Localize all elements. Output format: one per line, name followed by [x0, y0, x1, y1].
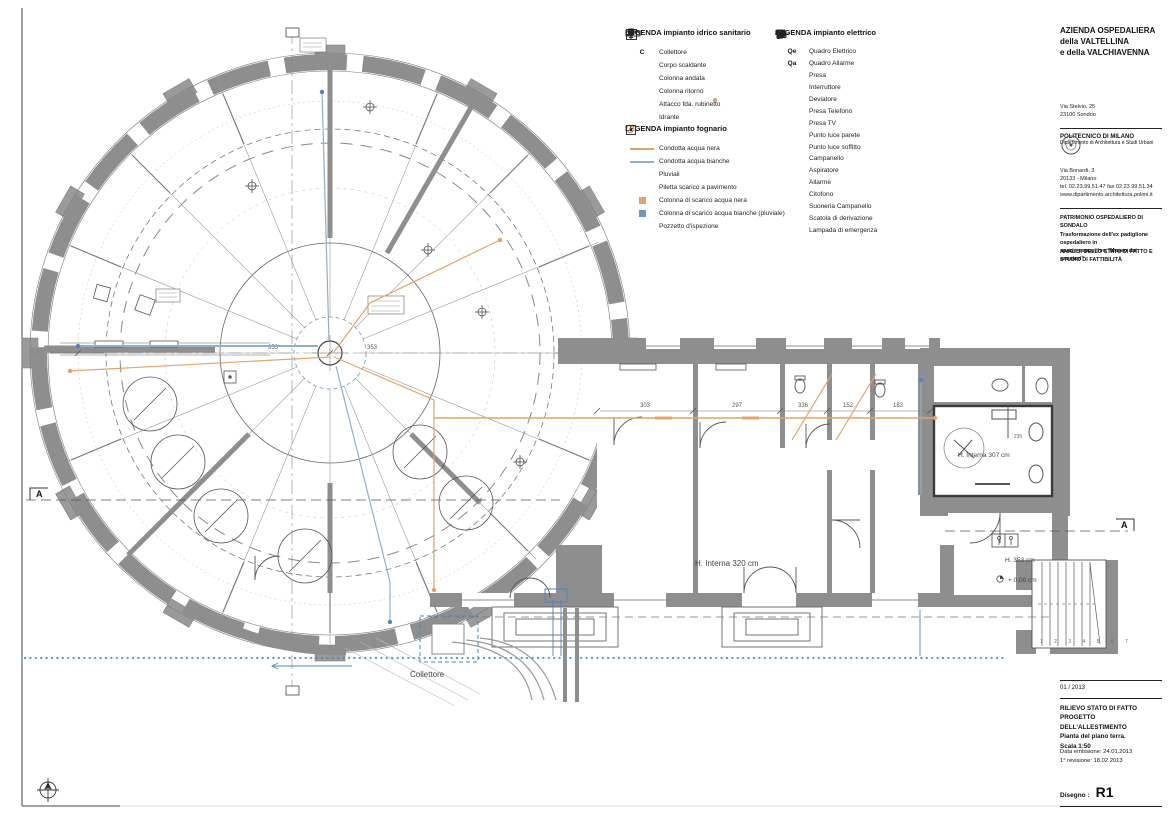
legend-item: Presa TV: [775, 117, 877, 129]
legend-item: Pluviali: [625, 168, 785, 181]
legend-item: Corpo scaldante: [625, 59, 751, 72]
legend-item: Scatola di derivazione: [775, 212, 877, 224]
drawing-number: Disegno : R1: [1060, 784, 1162, 800]
svg-text:297: 297: [732, 403, 743, 409]
title-block: AZIENDA OSPEDALIERA della VALTELLINA e d…: [1060, 22, 1162, 812]
svg-text:A: A: [36, 489, 43, 499]
drawing-sheet: 353 353: [0, 0, 1170, 827]
legend-idrico-title: LEGENDA impianto idrico sanitario: [625, 28, 751, 37]
collettore-symbol: C: [640, 49, 645, 56]
legend-elettrico-title: LEGENDA impianto elettrico: [775, 28, 877, 37]
legend-item: Aspiratore: [775, 165, 877, 177]
legend-item: Suoneria Campanello: [775, 201, 877, 213]
legend-item: C Collettore: [625, 46, 751, 59]
electric-panel-symbol: Qe: [788, 48, 797, 55]
dim-label: 353: [367, 345, 378, 351]
room-label-h353: H. 353 cm: [1005, 557, 1035, 564]
university-address: Via Bonardi, 3 20133 - Milano tel. 02.23…: [1060, 168, 1162, 200]
emergency-light-icon: [775, 28, 788, 40]
politecnico-logo: [1060, 134, 1082, 156]
stormwater-line-icon: [630, 161, 654, 163]
project-phase: ANALISI DELLO STATO DI FATTO E STUDIO DI…: [1060, 248, 1162, 265]
entry-porches: [492, 607, 822, 647]
room-label-h320: H. Interna 320 cm: [695, 559, 759, 568]
light-symbols: [245, 100, 527, 469]
legend-item: Citofono: [775, 189, 877, 201]
tag-boxes: [156, 38, 404, 314]
level-label: + 0,00 cm: [1008, 577, 1037, 584]
legend-item: Condotta acqua nera: [625, 142, 785, 155]
legend-item: Punto luce soffitto: [775, 141, 877, 153]
drawing-code: R1: [1096, 784, 1114, 800]
north-arrow-icon: [37, 778, 59, 802]
legend-item: Colonna ritorno: [625, 85, 751, 98]
legend-item: Piletta scarico a pavimento: [625, 181, 785, 194]
university-block: POLITECNICO DI MILANO Dipartimento di Ar…: [1060, 134, 1162, 146]
legend-fognario-title: LEGENDA impianto fognario: [625, 124, 785, 133]
legend-item: Qa Quadro Allarme: [775, 58, 877, 70]
sewage-line-icon: [630, 148, 654, 150]
svg-text:183: 183: [893, 403, 904, 409]
rainwater-stack-icon: [639, 210, 646, 217]
legend-item: Campanello: [775, 153, 877, 165]
legend-elettrico: LEGENDA impianto elettrico Qe Quadro Ele…: [775, 28, 877, 236]
legend-item: Allarme: [775, 177, 877, 189]
legend-item: Colonna di scarico acqua bianche (pluvia…: [625, 207, 785, 220]
client-name: AZIENDA OSPEDALIERA della VALTELLINA e d…: [1060, 26, 1162, 58]
legend-item: Colonna di scarico acqua nera: [625, 194, 785, 207]
revision-notes: Data emissione: 24.01.2013 1° revisione:…: [1060, 748, 1162, 765]
floor-plan: 353 353: [0, 0, 1170, 827]
legend-idrico: LEGENDA impianto idrico sanitario C Coll…: [625, 28, 751, 124]
collector-label: Collettore: [410, 670, 445, 679]
sheet-date: 01 / 2013: [1060, 685, 1162, 691]
legend-item: Deviatore: [775, 94, 877, 106]
legend-item: Qe Quadro Elettrico: [775, 46, 877, 58]
inspection-pit-icon: [625, 124, 637, 136]
legend-fognario: LEGENDA impianto fognario Condotta acqua…: [625, 124, 785, 233]
room-label-h307: H. Interna 307 cm: [958, 452, 1010, 459]
legend-item: Pozzetto d'ispezione: [625, 220, 785, 233]
legend-item: Condotta acqua bianche: [625, 155, 785, 168]
legend-item: Attacco fda. rubinetto: [625, 98, 751, 111]
legend-item: Presa: [775, 70, 877, 82]
svg-text:303: 303: [640, 403, 651, 409]
legend-item: Presa Telefono: [775, 105, 877, 117]
dim-label: 235: [1014, 434, 1023, 440]
legend-item: Lampada di emergenza: [775, 224, 877, 236]
svg-text:336: 336: [798, 403, 809, 409]
junction-block: [556, 545, 602, 608]
legend-item: Idrante: [625, 111, 751, 124]
legend-item: Interruttore: [775, 82, 877, 94]
soil-stack-icon: [639, 197, 646, 204]
hydrant-icon: [625, 28, 638, 41]
alarm-panel-symbol: Qa: [788, 60, 797, 67]
legend-item: Punto luce parete: [775, 129, 877, 141]
drawing-title: RILIEVO STATO DI FATTO PROGETTO DELL'ALL…: [1060, 704, 1162, 751]
client-address: Via Stelvio, 25 23100 Sondrio: [1060, 104, 1162, 120]
round-tables: [123, 377, 493, 583]
svg-text:152: 152: [843, 403, 854, 409]
legend-item: Colonna andata: [625, 72, 751, 85]
